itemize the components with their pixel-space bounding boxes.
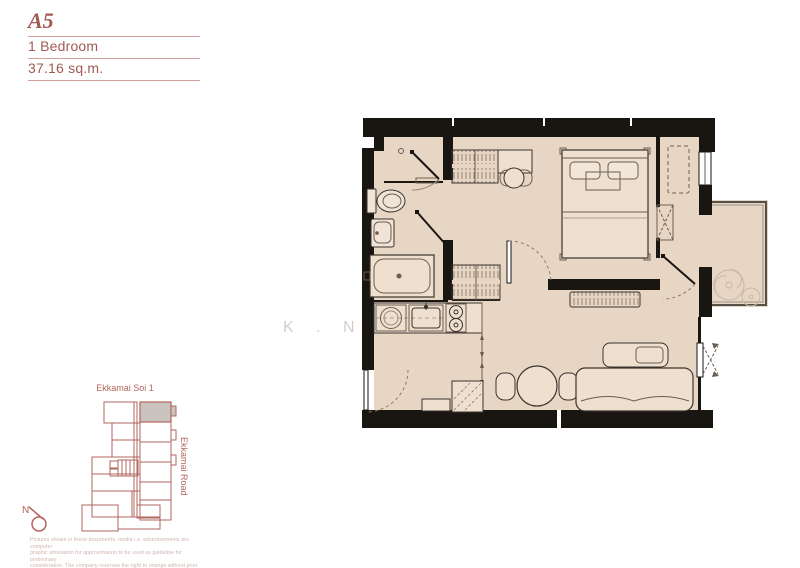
brochure-page: A5 1 Bedroom 37.16 sq.m. K . N O: [0, 0, 800, 568]
dining-chair-icon: [496, 373, 515, 400]
floor-plan: [362, 118, 768, 428]
toilet-icon: [367, 189, 405, 213]
north-arrow-icon: N: [22, 505, 46, 531]
highlighted-unit: [140, 402, 176, 422]
dining-chair-icon: [559, 373, 578, 400]
wardrobe-icon: [452, 150, 498, 183]
fridge-icon: [452, 381, 483, 412]
disclaimer-line: graphic simulation for approximation to …: [30, 550, 198, 563]
kitchen-counter: [374, 303, 482, 333]
bathtub-icon: [364, 255, 434, 297]
shoe-cabinet: [422, 399, 450, 411]
disclaimer: Pictures shown in these documents, media…: [30, 537, 198, 568]
site-plan: Ekkamai Soi 1 Ekkamai Road: [22, 383, 189, 531]
coffee-table-icon: [603, 343, 668, 367]
dining-table-icon: [517, 366, 557, 406]
window-right-bedroom: [699, 152, 711, 185]
north-label: N: [22, 505, 29, 516]
street-label-top: Ekkamai Soi 1: [96, 383, 154, 393]
basin-icon: [371, 219, 394, 247]
tv-console: [570, 292, 640, 307]
floor-plan-canvas: K . N O: [0, 0, 800, 568]
disclaimer-line: consideration. The company reserves the …: [30, 563, 198, 568]
stool-icon: [504, 168, 524, 188]
closet-icon: [452, 265, 500, 300]
street-label-right: Ekkamai Road: [179, 437, 189, 496]
window-x-living: [697, 343, 719, 377]
sofa-icon: [576, 368, 693, 411]
bed-icon: [560, 148, 650, 260]
disclaimer-line: Pictures shown in these documents, media…: [30, 537, 198, 550]
